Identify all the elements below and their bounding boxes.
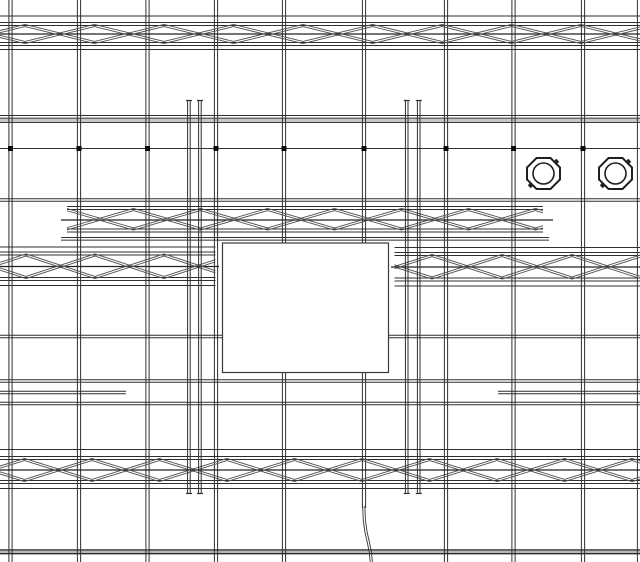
octagon-fixture-2 bbox=[599, 158, 632, 189]
octagon-corner-notch bbox=[600, 182, 606, 188]
grid-node-dot bbox=[282, 146, 287, 151]
hanger-pair-right bbox=[404, 101, 422, 494]
hanger-pair-left bbox=[186, 101, 203, 494]
grid-node-dot bbox=[444, 146, 449, 151]
truss-bottom bbox=[0, 450, 640, 489]
octagon-corner-notch bbox=[553, 159, 559, 165]
grid-node-dot bbox=[581, 146, 586, 151]
grid-node-dot bbox=[8, 146, 13, 151]
truss-top bbox=[0, 23, 640, 46]
octagon-corner-notch bbox=[625, 159, 631, 165]
octagon-corner-notch bbox=[528, 182, 534, 188]
equipment-rectangle bbox=[223, 243, 389, 373]
truss-middle bbox=[61, 207, 553, 241]
grid-node-dot bbox=[145, 146, 150, 151]
grid-node-dot bbox=[214, 146, 219, 151]
structural-plan-drawing bbox=[0, 0, 640, 562]
grid-node-dot bbox=[77, 146, 82, 151]
grid-node-dot bbox=[362, 146, 367, 151]
octagon-fixture-1 bbox=[527, 158, 560, 189]
reference-dot-line bbox=[0, 146, 640, 151]
grid-node-dot bbox=[511, 146, 516, 151]
drawing-viewport[interactable] bbox=[0, 0, 640, 562]
truss-row2-left bbox=[0, 247, 219, 286]
